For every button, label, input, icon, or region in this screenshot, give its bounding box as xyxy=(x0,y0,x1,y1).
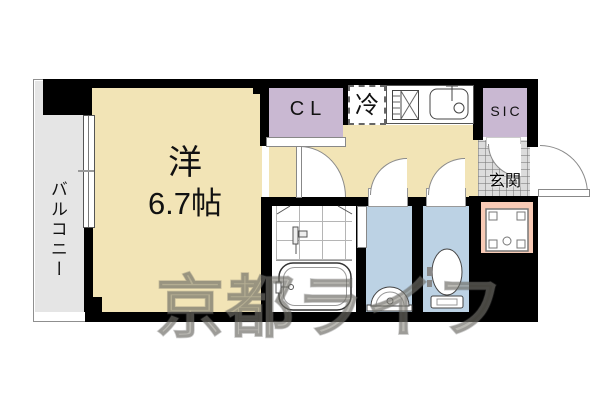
laundry-pan-area xyxy=(481,202,533,253)
wall-top-left-block xyxy=(43,79,92,115)
main-room-door-leaf xyxy=(296,146,302,198)
main-room-label: 洋 xyxy=(150,146,220,182)
closet-label: CL xyxy=(268,99,343,120)
wall-bath-left xyxy=(261,197,272,322)
floorplan-canvas: バルコニー 洋 6.7帖 CL 冷 SIC 玄関 京都ライフ xyxy=(0,0,600,400)
bathroom-tile-grid xyxy=(276,206,352,261)
kitchen-counter xyxy=(386,85,474,124)
front-door-swing-icon xyxy=(540,145,588,194)
wall-bottom-notch xyxy=(88,297,102,312)
front-door-leaf xyxy=(538,189,590,197)
window-center-tick xyxy=(78,170,94,172)
wall-washroom-toilet xyxy=(412,197,423,322)
wall-right-upper xyxy=(527,88,538,147)
toilet-room-area xyxy=(422,203,470,312)
fridge-label: 冷 xyxy=(348,93,386,118)
bathroom-door xyxy=(357,206,367,248)
balcony-label: バルコニー xyxy=(48,145,66,315)
entrance-label: 玄関 xyxy=(480,174,530,191)
main-room-size-label: 6.7帖 xyxy=(120,188,250,221)
washroom-area xyxy=(365,203,413,312)
shoe-closet-label: SIC xyxy=(483,104,527,119)
wall-counter-sic xyxy=(473,83,483,140)
window-icon xyxy=(83,115,95,228)
